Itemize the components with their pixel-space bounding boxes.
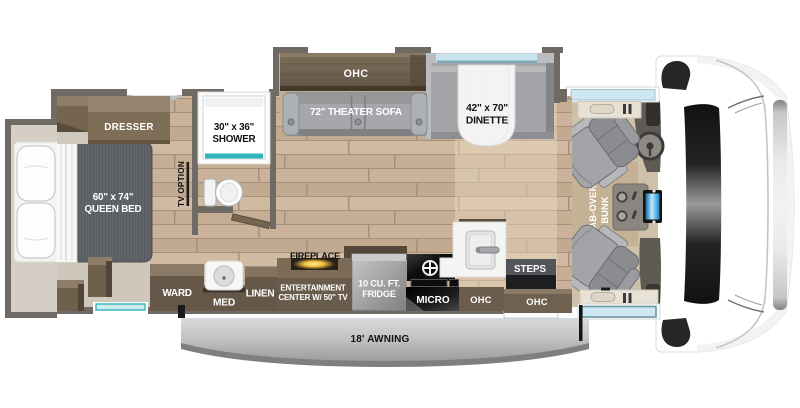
svg-text:LINEN: LINEN bbox=[246, 289, 275, 300]
svg-text:WARD: WARD bbox=[162, 288, 191, 299]
svg-text:30" x 36": 30" x 36" bbox=[214, 122, 254, 133]
svg-text:OHC: OHC bbox=[344, 68, 369, 80]
svg-text:CENTER W/ 50" TV: CENTER W/ 50" TV bbox=[278, 293, 348, 302]
svg-text:18' AWNING: 18' AWNING bbox=[350, 334, 409, 345]
svg-text:ENTERTAINMENT: ENTERTAINMENT bbox=[280, 284, 346, 293]
svg-text:60" x 74": 60" x 74" bbox=[93, 192, 134, 203]
svg-text:STEPS: STEPS bbox=[514, 264, 547, 275]
svg-text:OHC: OHC bbox=[526, 296, 547, 307]
svg-text:FIREPLACE: FIREPLACE bbox=[290, 251, 340, 261]
svg-text:OHC: OHC bbox=[470, 294, 491, 305]
svg-text:42" x 70": 42" x 70" bbox=[466, 103, 508, 114]
svg-text:SHOWER: SHOWER bbox=[213, 134, 256, 145]
svg-text:10 CU. FT.: 10 CU. FT. bbox=[358, 279, 400, 289]
svg-text:DRESSER: DRESSER bbox=[104, 122, 153, 133]
svg-text:QUEEN BED: QUEEN BED bbox=[85, 204, 142, 215]
svg-text:MED: MED bbox=[213, 298, 235, 309]
svg-text:FRIDGE: FRIDGE bbox=[362, 289, 396, 299]
svg-text:TV OPTION: TV OPTION bbox=[177, 161, 186, 207]
svg-text:MICRO: MICRO bbox=[416, 295, 450, 306]
svg-text:BUNK: BUNK bbox=[600, 196, 610, 224]
svg-text:DINETTE: DINETTE bbox=[466, 116, 509, 127]
svg-text:72" THEATER SOFA: 72" THEATER SOFA bbox=[310, 107, 402, 118]
